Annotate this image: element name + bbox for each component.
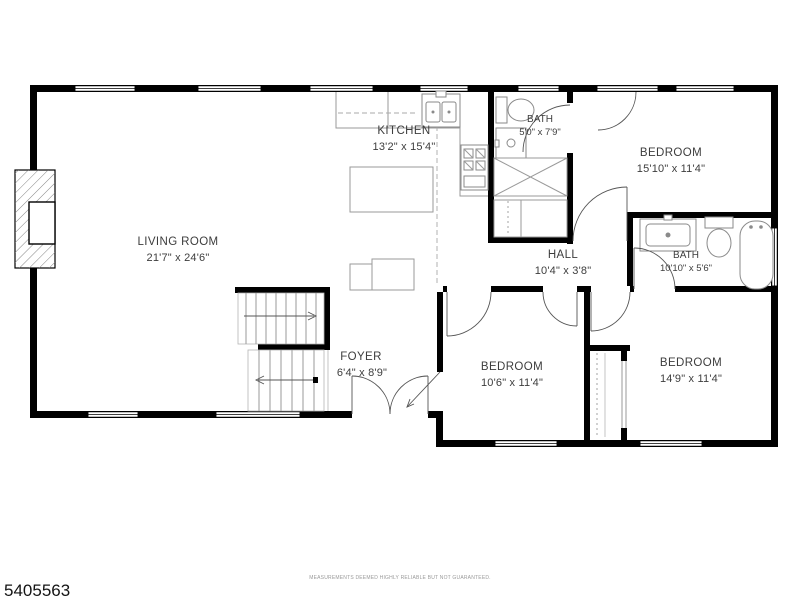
window — [518, 86, 559, 91]
svg-text:BEDROOM: BEDROOM — [640, 147, 702, 159]
svg-text:10'4" x 3'8": 10'4" x 3'8" — [535, 265, 592, 277]
window — [495, 441, 557, 446]
bedroom-upper-door-arc — [573, 187, 627, 241]
window — [640, 441, 702, 446]
window — [420, 86, 468, 91]
kitchen-island — [350, 167, 433, 212]
svg-text:13'2" x 15'4": 13'2" x 15'4" — [373, 141, 436, 153]
disclaimer-text: MEASUREMENTS DEEMED HIGHLY RELIABLE BUT … — [309, 575, 491, 581]
stairs — [238, 293, 328, 411]
floor-plan-page: LIVING ROOM 21'7" x 24'6" KITCHEN 13'2" … — [0, 0, 800, 600]
hall-closet — [494, 200, 567, 237]
svg-text:BATH: BATH — [673, 250, 699, 261]
bedroom-right-door-arc — [591, 292, 630, 331]
bedroom-middle-door-arc — [447, 292, 491, 336]
room-label-foyer: FOYER 6'4" x 8'9" — [337, 351, 387, 379]
bathtub-icon — [740, 221, 773, 289]
fireplace-icon — [15, 170, 55, 268]
shower-icon — [494, 158, 567, 196]
room-label-bedroom-lower-middle: BEDROOM 10'6" x 11'4" — [481, 361, 543, 389]
kitchen-sink-icon — [422, 91, 460, 127]
bedroom-middle-door2-arc — [543, 292, 577, 326]
svg-text:10'10" x 5'6": 10'10" x 5'6" — [660, 263, 712, 274]
room-label-bedroom-lower-right: BEDROOM 14'9" x 11'4" — [660, 357, 722, 385]
svg-text:LIVING ROOM: LIVING ROOM — [137, 236, 218, 248]
foyer-closet-door — [407, 372, 440, 407]
svg-text:BEDROOM: BEDROOM — [660, 357, 722, 369]
svg-text:14'9" x 11'4": 14'9" x 11'4" — [660, 373, 722, 385]
window — [597, 86, 658, 91]
svg-text:5'0" x 7'9": 5'0" x 7'9" — [519, 127, 561, 138]
living-room-furniture — [350, 259, 414, 290]
mls-number: 5405563 — [4, 581, 70, 600]
svg-text:10'6" x 11'4": 10'6" x 11'4" — [481, 377, 543, 389]
svg-text:BEDROOM: BEDROOM — [481, 361, 543, 373]
svg-text:15'10" x 11'4": 15'10" x 11'4" — [637, 163, 705, 175]
room-label-bedroom-upper-right: BEDROOM 15'10" x 11'4" — [637, 147, 705, 175]
window — [676, 86, 734, 91]
svg-text:FOYER: FOYER — [340, 351, 382, 363]
window — [198, 86, 261, 91]
svg-text:HALL: HALL — [548, 249, 579, 261]
kitchen-fixtures — [336, 91, 488, 286]
room-label-hall: HALL 10'4" x 3'8" — [535, 249, 592, 277]
window — [310, 86, 373, 91]
toilet-icon — [705, 217, 733, 257]
svg-text:6'4" x 8'9": 6'4" x 8'9" — [337, 367, 387, 379]
hall-doors — [447, 187, 630, 336]
svg-text:BATH: BATH — [527, 114, 553, 125]
room-label-kitchen: KITCHEN 13'2" x 15'4" — [373, 125, 436, 153]
bedroom-closet — [597, 353, 626, 437]
window — [88, 412, 138, 417]
bath-right-fixtures — [634, 215, 773, 292]
bedroom-upper-closet-door-arc — [598, 92, 636, 130]
entry-door-left-arc — [352, 376, 390, 414]
svg-text:KITCHEN: KITCHEN — [377, 125, 430, 137]
vanity-sink-icon — [640, 215, 696, 251]
stove-icon — [461, 145, 488, 190]
room-label-bath-right: BATH 10'10" x 5'6" — [660, 250, 712, 274]
bath-upper-fixtures — [494, 92, 636, 196]
window — [75, 86, 135, 91]
svg-text:21'7" x 24'6": 21'7" x 24'6" — [147, 252, 210, 264]
entry-door-right-arc — [390, 376, 428, 414]
window — [216, 412, 300, 417]
room-label-living-room: LIVING ROOM 21'7" x 24'6" — [137, 236, 218, 264]
floor-plan-drawing: LIVING ROOM 21'7" x 24'6" KITCHEN 13'2" … — [0, 0, 800, 600]
